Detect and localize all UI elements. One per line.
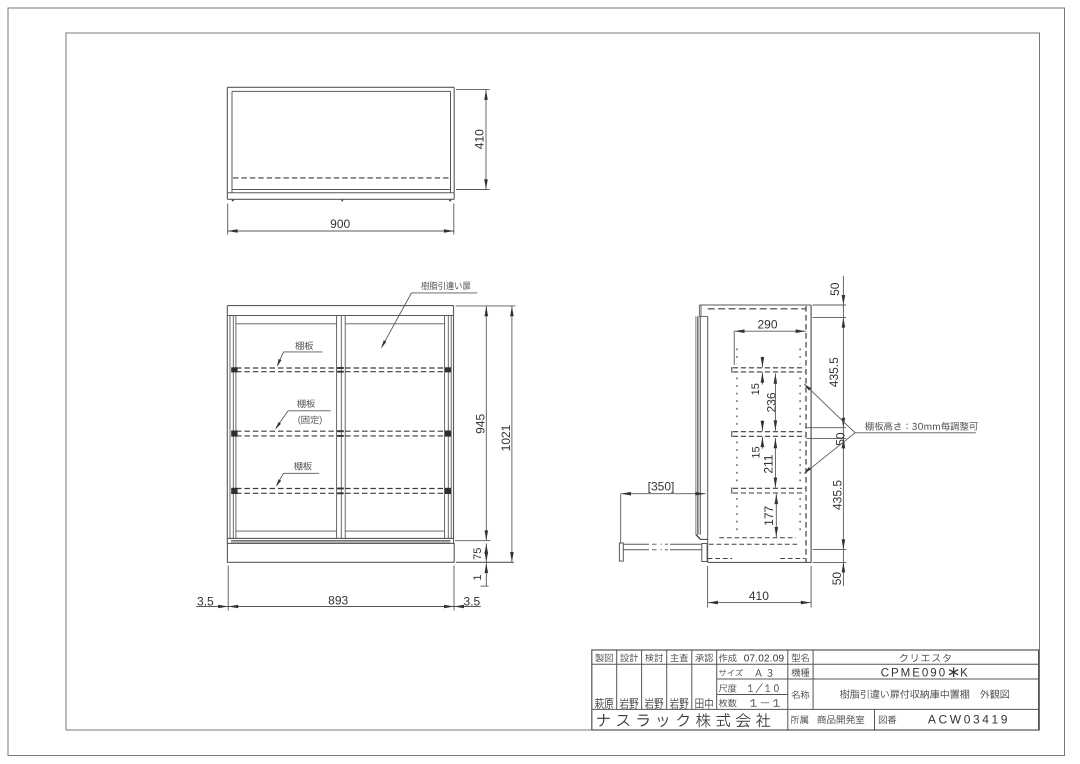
svg-text:893: 893 xyxy=(328,593,348,607)
svg-text:900: 900 xyxy=(330,217,350,231)
svg-text:236: 236 xyxy=(765,392,779,412)
svg-text:3.5: 3.5 xyxy=(464,595,481,609)
svg-text:435.5: 435.5 xyxy=(827,357,841,387)
svg-text:[350]: [350] xyxy=(648,479,675,493)
svg-text:1: 1 xyxy=(472,575,484,581)
svg-text:435.5: 435.5 xyxy=(831,480,845,510)
svg-text:07.02.09: 07.02.09 xyxy=(744,654,785,665)
svg-text:ACW03419: ACW03419 xyxy=(928,713,1010,727)
svg-text:15: 15 xyxy=(751,446,763,458)
svg-text:CPME090: CPME090 xyxy=(881,668,947,680)
svg-text:177: 177 xyxy=(762,505,776,525)
svg-text:75: 75 xyxy=(472,548,484,560)
svg-text:K: K xyxy=(960,668,968,680)
svg-text:945: 945 xyxy=(473,413,487,433)
svg-text:15: 15 xyxy=(750,383,762,395)
svg-text:211: 211 xyxy=(762,454,776,473)
svg-text:50: 50 xyxy=(834,432,848,446)
svg-text:50: 50 xyxy=(828,282,842,296)
svg-text:410: 410 xyxy=(749,589,769,603)
svg-text:3.5: 3.5 xyxy=(197,594,214,608)
svg-text:410: 410 xyxy=(473,129,487,149)
svg-text:50: 50 xyxy=(830,572,844,586)
svg-text:290: 290 xyxy=(757,317,777,331)
svg-text:1021: 1021 xyxy=(499,424,513,451)
